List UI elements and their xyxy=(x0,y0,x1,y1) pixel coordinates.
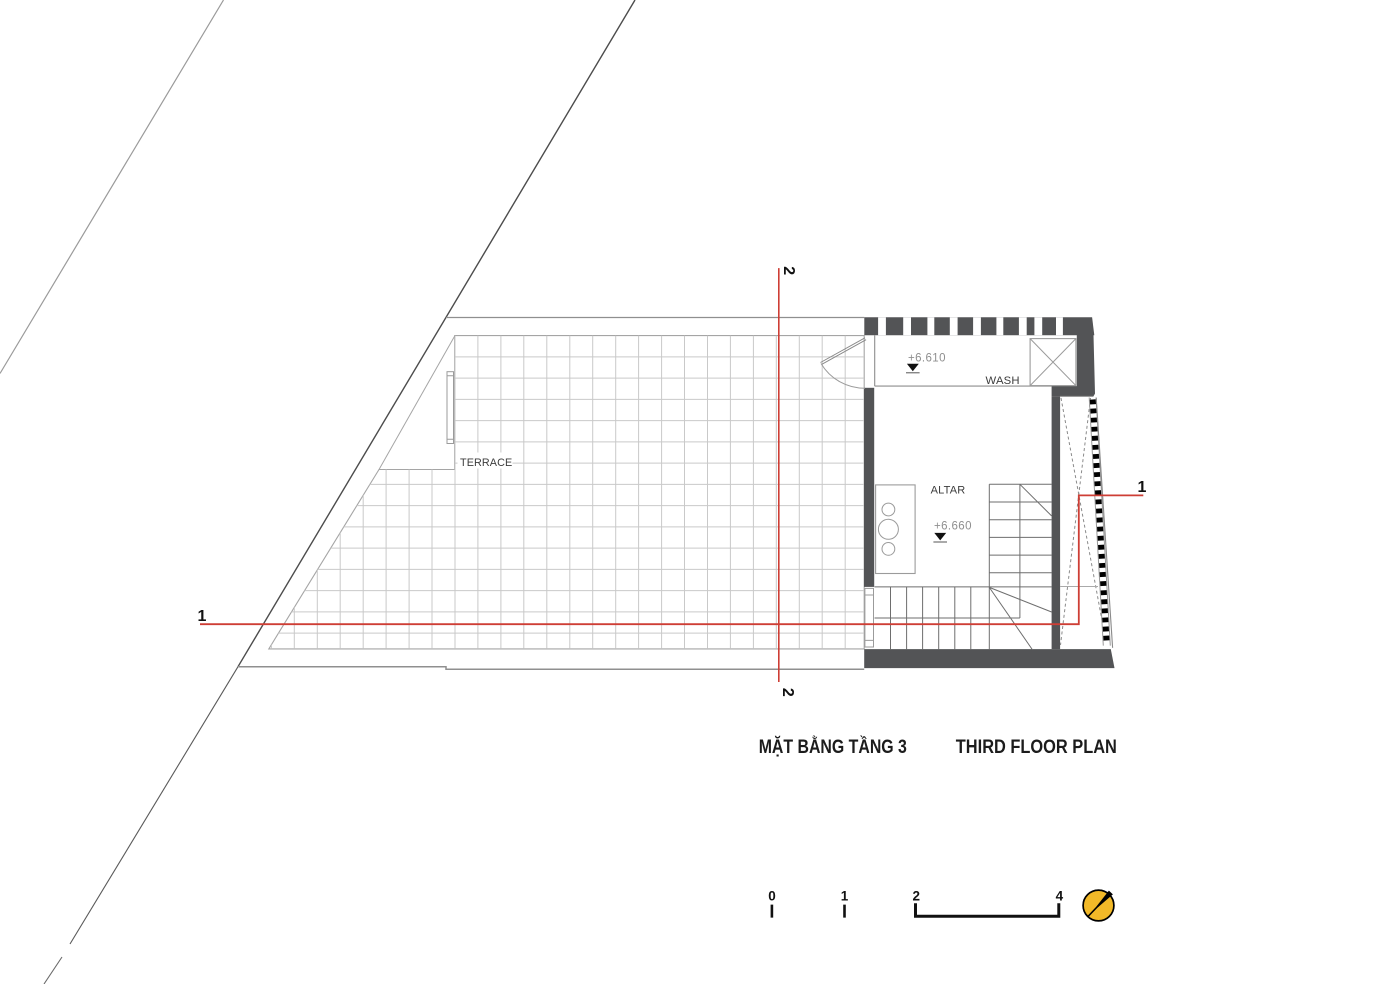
svg-text:1: 1 xyxy=(198,608,207,625)
svg-text:MẶT BẰNG TẦNG 3: MẶT BẰNG TẦNG 3 xyxy=(759,736,907,758)
svg-text:+6.610: +6.610 xyxy=(908,353,946,365)
svg-text:0: 0 xyxy=(768,888,776,903)
svg-text:ALTAR: ALTAR xyxy=(931,485,966,497)
svg-text:1: 1 xyxy=(841,888,849,903)
svg-text:1: 1 xyxy=(1138,479,1147,496)
svg-text:2: 2 xyxy=(912,888,920,903)
svg-text:TERRACE: TERRACE xyxy=(460,457,512,469)
svg-text:WASH: WASH xyxy=(986,375,1020,387)
svg-text:4: 4 xyxy=(1056,888,1064,903)
svg-text:2: 2 xyxy=(780,266,797,275)
svg-text:THIRD FLOOR PLAN: THIRD FLOOR PLAN xyxy=(956,737,1117,758)
svg-text:2: 2 xyxy=(779,688,796,697)
svg-text:+6.660: +6.660 xyxy=(934,521,972,533)
